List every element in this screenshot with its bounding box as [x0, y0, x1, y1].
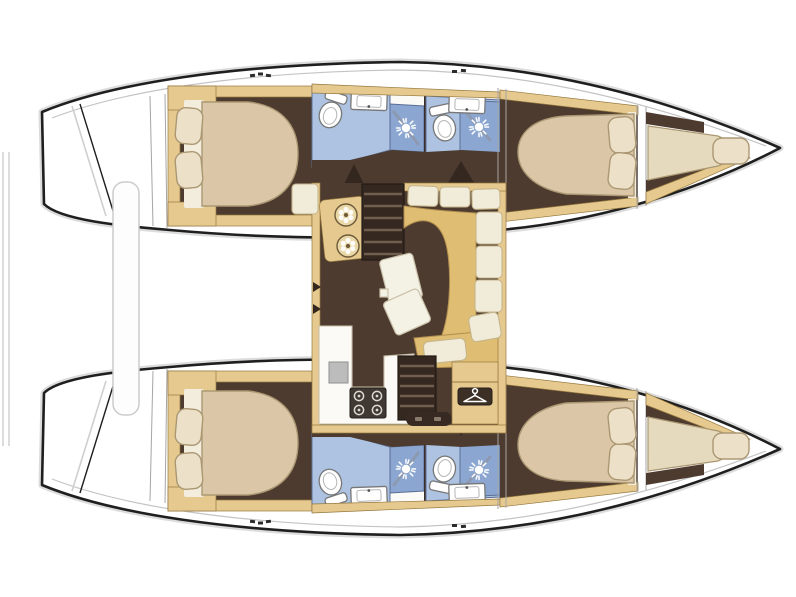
galley-stove	[350, 388, 386, 418]
table-leg	[380, 289, 388, 297]
cockpit-bench-bar	[113, 182, 139, 415]
catamaran-floor-plan	[0, 0, 796, 597]
stairs-body	[362, 184, 404, 260]
sofa-cushion	[408, 185, 439, 206]
fwd-seat-cushion	[292, 184, 318, 214]
sofa-cushion	[476, 212, 502, 244]
stairs-port	[362, 184, 404, 260]
sofa-cushion	[476, 246, 502, 278]
hanger-plaque	[458, 388, 492, 405]
floor-plan-svg	[0, 0, 796, 597]
saloon-frame-bottom	[312, 425, 506, 433]
entry-step-mark	[415, 417, 422, 421]
stern-platform-lines	[3, 152, 9, 446]
chart-stool	[335, 204, 357, 226]
chart-stool	[337, 235, 359, 257]
wardrobe	[452, 362, 498, 424]
entry-step-mark	[434, 417, 441, 421]
sofa-cushion	[475, 280, 502, 312]
galley-sink	[329, 362, 348, 383]
sofa-cushion	[440, 187, 470, 207]
sofa-cushion	[468, 312, 502, 343]
sofa-cushion	[472, 189, 501, 210]
entry-step	[406, 412, 452, 426]
saloon	[292, 183, 506, 433]
